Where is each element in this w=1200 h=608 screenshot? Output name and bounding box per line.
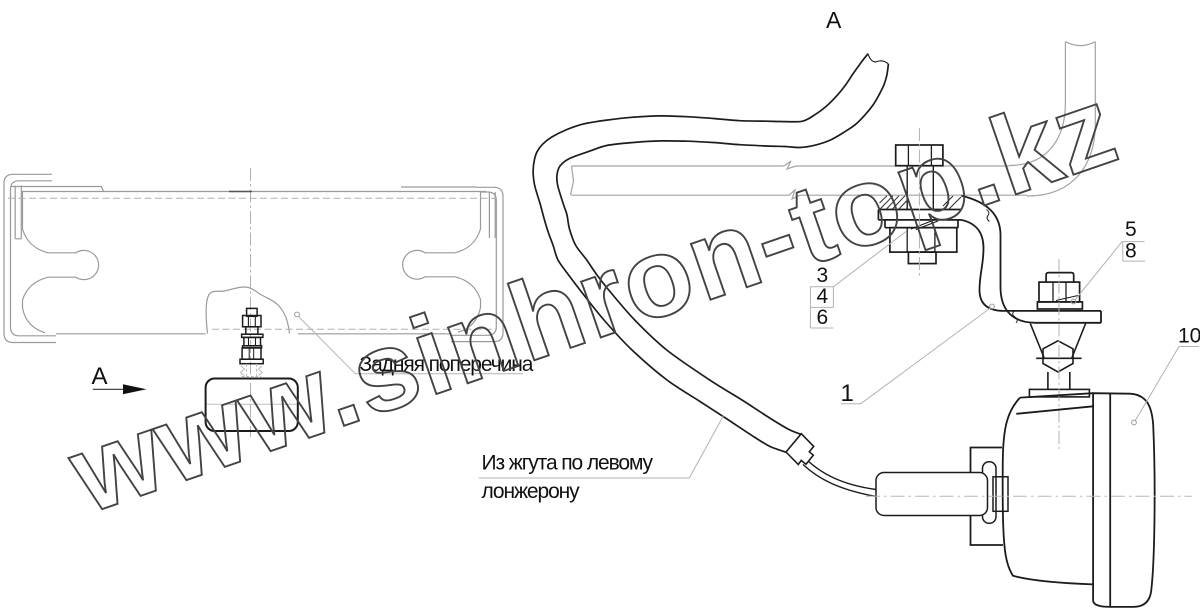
svg-text:1: 1 (841, 380, 854, 407)
svg-text:5: 5 (1125, 218, 1137, 241)
svg-text:8: 8 (1125, 240, 1137, 263)
svg-text:А: А (92, 363, 108, 390)
svg-text:6: 6 (817, 306, 829, 329)
svg-text:4: 4 (817, 285, 829, 308)
svg-text:10: 10 (1178, 325, 1200, 348)
svg-text:А: А (826, 7, 842, 33)
svg-text:Из жгута по левому: Из жгута по левому (482, 452, 654, 475)
svg-text:лонжерону: лонжерону (482, 480, 581, 503)
